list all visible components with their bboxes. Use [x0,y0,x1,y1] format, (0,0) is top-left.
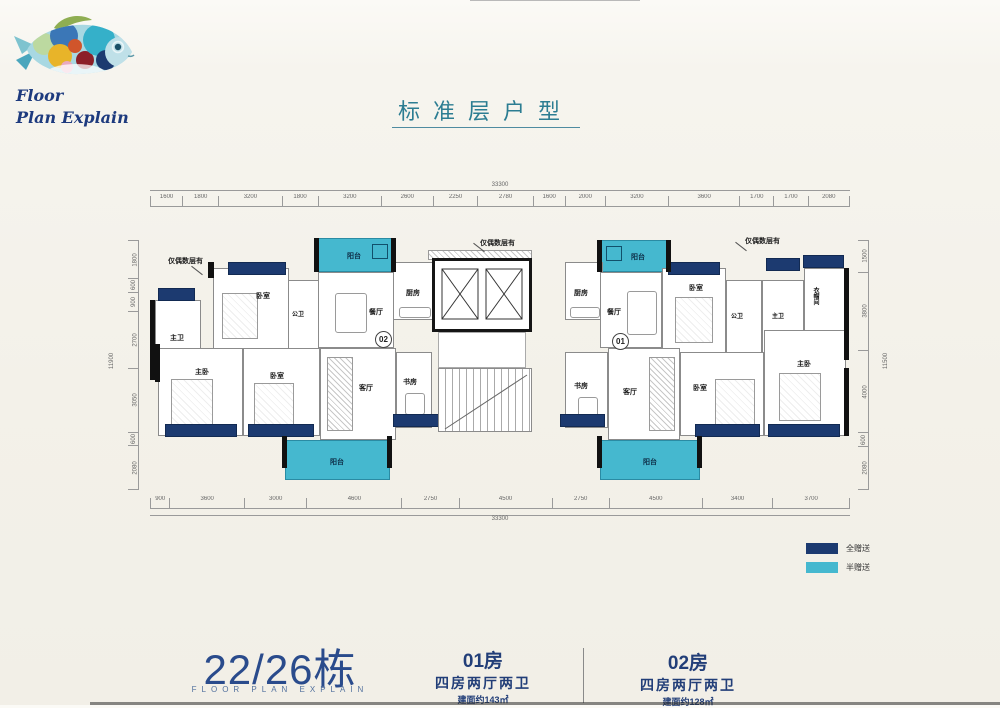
fish-logo [14,6,144,96]
master-bed-right-label: 主卧 [797,359,811,369]
bedroom-top-left: 卧室 [213,268,289,360]
study-left-label: 书房 [403,377,417,387]
unit02-circle: 02 [375,331,392,348]
master-bath-right-label: 主卫 [772,311,784,320]
wall-segment [697,436,702,468]
bay-window-bottom-left-1 [165,424,237,437]
counter-icon [399,307,431,318]
bedroom-bottom-left: 卧室 [243,348,320,436]
wall-segment [155,344,160,382]
bay-window-bottom-right-2 [695,424,760,437]
bed-icon [171,379,213,425]
living-left-label: 客厅 [359,383,373,393]
bedroom-bottom-left-label: 卧室 [270,371,284,381]
study-right-label: 书房 [574,381,588,391]
living-left: 客厅 [320,348,396,440]
legend-label-full-gift: 全赠送 [846,543,870,554]
unit02-layout: 四房两厅两卫 [625,675,751,695]
balcony-bottom-left-label: 阳台 [330,457,344,467]
bay-window-bottom-left-2 [248,424,314,437]
title-underline [392,127,580,128]
bay-window-bath-right [766,258,800,271]
bedroom-top-right: 卧室 [662,268,726,360]
page-title: 标准层户型 [398,94,573,126]
bay-window-bottom-right-1 [768,424,840,437]
dim-top-total: 33300 [150,182,850,188]
dim-bottom-total: 33300 [150,516,850,522]
cloakroom-right-label: 衣帽间 [811,287,820,305]
legend-label-half-gift: 半赠送 [846,562,870,573]
logo-text-line1: Floor [16,86,63,106]
dim-right-total: 11500 [883,353,889,369]
dim-left-total: 11900 [109,353,115,369]
fish-logo-graphic [14,6,144,96]
elevators-icon [435,261,529,329]
bed-icon [779,373,821,421]
wall-segment [314,238,319,272]
stair-diagonal [439,369,533,433]
dining-table-icon [335,293,367,333]
balcony-top-left-label: 阳台 [347,251,361,261]
unit01-circle: 01 [612,333,629,350]
balcony-top-left: 阳台 [318,238,395,272]
bedroom-bottom-right-label: 卧室 [693,383,707,393]
balcony-top-right-label: 阳台 [631,252,645,262]
note-leader-line [191,266,203,275]
kitchen-left-label: 厨房 [406,288,420,298]
public-bath-left-label: 公卫 [292,309,304,318]
dim-col-left: 1800600900270030506002080 [128,240,139,490]
dining-right-label: 餐厅 [607,307,621,317]
master-bed-bottom-left-label: 主卧 [195,367,209,377]
core-lobby [438,332,526,368]
public-bath-right: 公卫 [726,280,762,360]
bay-window-study-right [560,414,605,427]
master-bed-right: 主卧 [764,330,846,436]
dim-col-right: 1500380040006002080 [858,240,869,490]
bed-icon [254,383,294,427]
balcony-bottom-left: 阳台 [285,440,390,480]
bay-window-top-left [228,262,286,275]
balcony-planter-icon [372,244,388,259]
dim-row-bottom: 900360030004600275045002750450034003700 [150,498,850,509]
even-floor-note-center: 仅偶数层有 [480,238,515,248]
unit01-name: 01房 [420,646,546,673]
living-right-label: 客厅 [623,387,637,397]
bed-icon [715,379,755,425]
dim-line-top-total [150,190,850,191]
logo-text-line2: Plan Explain [16,108,129,128]
bed-icon [675,297,713,343]
wall-segment [391,238,396,272]
sofa-icon [649,357,675,431]
dim-row-top: 1600180032001800320026002250278016002000… [150,196,850,207]
public-bath-right-label: 公卫 [731,311,743,320]
living-right: 客厅 [608,348,680,440]
bay-window-top-right [668,262,720,275]
balcony-top-right: 阳台 [600,240,670,272]
legend-swatch-full-gift [806,543,838,554]
dining-right: 餐厅 [600,272,662,348]
footer-divider [583,648,584,703]
balcony-bottom-right: 阳台 [600,440,700,480]
elevator-block [432,258,532,332]
wall-segment [844,268,849,360]
scan-artifact-line [470,0,640,1]
building-subtitle: FLOOR PLAN EXPLAIN [180,685,380,694]
floor-plan: 阳台 厨房 餐厅 卧室 公卫 主卫 主卧 卧室 客厅 书房 阳台 02 [150,238,850,490]
stairs [438,368,532,432]
wall-segment [597,240,602,272]
dining-table-icon [627,291,657,335]
wall-segment [282,436,287,468]
balcony-bottom-right-label: 阳台 [643,457,657,467]
bedroom-top-right-label: 卧室 [689,283,703,293]
unit01-layout: 四房两厅两卫 [420,673,546,693]
even-floor-note-left: 仅偶数层有 [168,256,203,266]
wall-segment [208,262,214,278]
wall-segment [844,368,849,436]
wall-segment [597,436,602,468]
legend-swatch-half-gift [806,562,838,573]
dining-left-label: 餐厅 [369,307,383,317]
bedroom-top-left-label: 卧室 [256,291,270,301]
even-floor-note-right: 仅偶数层有 [745,236,780,246]
kitchen-right-label: 厨房 [574,288,588,298]
wall-segment [387,436,392,468]
balcony-planter-icon [606,246,622,261]
sofa-icon [327,357,353,431]
unit02-summary: 02房 四房两厅两卫 建面约128㎡ [625,648,751,708]
wall-segment [666,240,671,272]
master-bath-left-label: 主卫 [170,333,184,343]
unit01-summary: 01房 四房两厅两卫 建面约143㎡ [420,646,546,706]
bay-window-cloakroom [803,255,844,268]
bay-window-study-left [393,414,441,427]
counter-icon [570,307,600,318]
bay-window-bath-left [158,288,195,301]
desk-icon [405,393,425,415]
unit02-name: 02房 [625,648,751,675]
kitchen-left: 厨房 [393,262,435,320]
bed-icon [222,293,258,339]
master-bed-bottom-left: 主卧 [158,348,243,436]
